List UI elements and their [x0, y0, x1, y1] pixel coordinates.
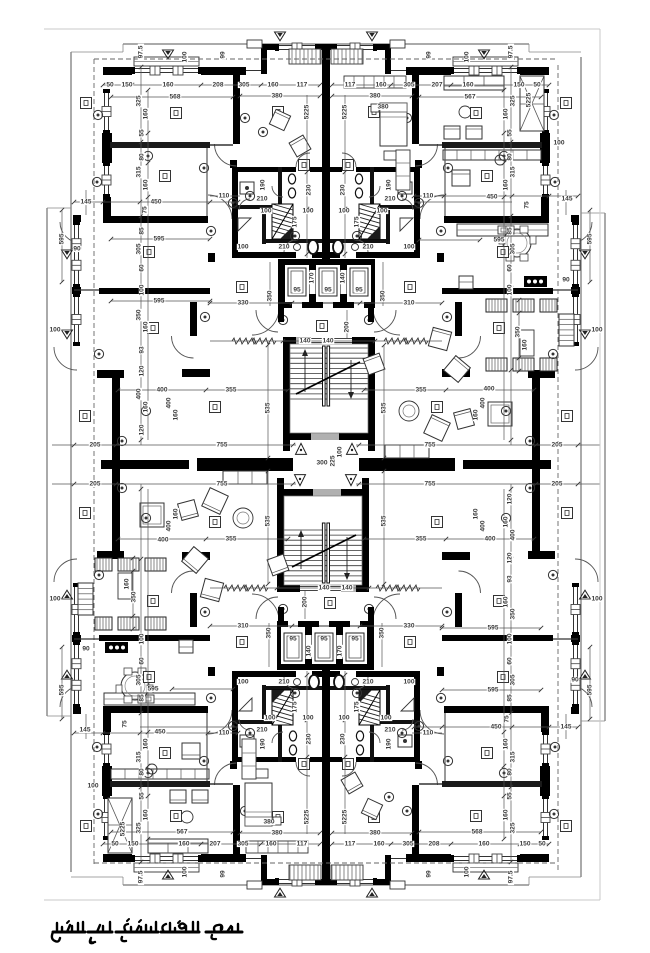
- svg-text:75: 75: [122, 720, 129, 728]
- svg-text:400: 400: [510, 529, 517, 540]
- svg-text:400: 400: [480, 520, 487, 531]
- svg-text:450: 450: [150, 199, 161, 206]
- svg-text:55: 55: [139, 129, 146, 137]
- svg-text:145: 145: [79, 727, 90, 734]
- svg-text:230: 230: [340, 184, 347, 195]
- svg-text:150: 150: [127, 841, 138, 848]
- svg-text:100: 100: [376, 208, 387, 215]
- svg-text:380: 380: [263, 819, 274, 826]
- svg-text:50: 50: [538, 841, 546, 848]
- svg-text:230: 230: [306, 184, 313, 195]
- svg-text:355: 355: [415, 387, 426, 394]
- svg-text:160: 160: [178, 841, 189, 848]
- svg-text:95: 95: [351, 636, 359, 643]
- svg-text:100: 100: [182, 51, 189, 62]
- svg-text:100: 100: [264, 715, 275, 722]
- svg-text:75: 75: [504, 715, 511, 723]
- svg-text:380: 380: [377, 104, 388, 111]
- svg-text:305: 305: [237, 841, 248, 848]
- svg-text:595: 595: [487, 687, 498, 694]
- svg-text:145: 145: [561, 196, 572, 203]
- svg-text:100: 100: [464, 51, 471, 62]
- svg-text:305: 305: [510, 674, 517, 685]
- svg-text:93: 93: [507, 575, 514, 583]
- svg-text:60: 60: [507, 657, 514, 665]
- svg-text:50: 50: [533, 82, 541, 89]
- svg-text:160: 160: [143, 321, 150, 332]
- svg-text:595: 595: [153, 236, 164, 243]
- svg-text:305: 305: [136, 674, 143, 685]
- svg-text:95: 95: [320, 636, 328, 643]
- svg-text:160: 160: [503, 596, 510, 607]
- svg-text:595: 595: [487, 625, 498, 632]
- svg-text:205: 205: [551, 481, 562, 488]
- svg-text:380: 380: [369, 93, 380, 100]
- svg-text:380: 380: [271, 93, 282, 100]
- svg-text:100: 100: [139, 284, 146, 295]
- svg-text:117: 117: [345, 841, 356, 848]
- svg-text:160: 160: [143, 809, 150, 820]
- svg-text:150: 150: [513, 82, 524, 89]
- svg-text:175: 175: [292, 216, 299, 227]
- svg-text:190: 190: [260, 738, 267, 749]
- svg-text:305: 305: [402, 841, 413, 848]
- svg-text:100: 100: [237, 244, 248, 251]
- svg-text:5225: 5225: [304, 809, 311, 824]
- svg-text:80: 80: [507, 153, 514, 161]
- svg-text:568: 568: [169, 94, 180, 101]
- svg-text:755: 755: [424, 442, 435, 449]
- svg-text:100: 100: [182, 866, 189, 877]
- svg-text:325: 325: [136, 822, 143, 833]
- svg-text:60: 60: [139, 657, 146, 665]
- svg-text:60: 60: [139, 264, 146, 272]
- svg-text:5225: 5225: [342, 104, 349, 119]
- svg-text:355: 355: [225, 536, 236, 543]
- svg-text:595: 595: [153, 298, 164, 305]
- svg-text:100: 100: [49, 596, 60, 603]
- svg-text:100: 100: [591, 596, 602, 603]
- svg-text:100: 100: [591, 327, 602, 334]
- svg-text:85: 85: [139, 694, 146, 702]
- svg-text:110: 110: [423, 730, 434, 737]
- svg-text:315: 315: [136, 166, 143, 177]
- svg-text:160: 160: [267, 82, 278, 89]
- svg-text:140: 140: [299, 338, 310, 345]
- svg-text:535: 535: [265, 402, 272, 413]
- svg-text:380: 380: [271, 830, 282, 837]
- svg-text:95: 95: [293, 287, 301, 294]
- svg-text:170: 170: [337, 645, 344, 656]
- svg-text:160: 160: [522, 339, 529, 350]
- svg-text:140: 140: [340, 272, 347, 283]
- svg-text:350: 350: [380, 290, 387, 301]
- svg-text:75: 75: [142, 206, 149, 214]
- svg-text:97.5: 97.5: [138, 45, 145, 58]
- svg-text:595: 595: [493, 237, 504, 244]
- svg-text:100: 100: [139, 633, 146, 644]
- svg-text:205: 205: [89, 442, 100, 449]
- svg-text:207: 207: [431, 82, 442, 89]
- svg-text:90: 90: [73, 246, 81, 253]
- svg-text:310: 310: [237, 623, 248, 630]
- svg-text:315: 315: [510, 751, 517, 762]
- svg-text:100: 100: [403, 679, 414, 686]
- svg-text:310: 310: [403, 300, 414, 307]
- svg-text:50: 50: [106, 82, 114, 89]
- svg-text:160: 160: [462, 82, 473, 89]
- svg-text:160: 160: [503, 108, 510, 119]
- svg-text:210: 210: [278, 679, 289, 686]
- svg-text:350: 350: [131, 591, 138, 602]
- svg-text:208: 208: [212, 82, 223, 89]
- svg-text:305: 305: [510, 243, 517, 254]
- svg-text:595: 595: [587, 684, 594, 695]
- svg-text:207: 207: [209, 841, 220, 848]
- svg-text:190: 190: [386, 179, 393, 190]
- svg-text:175: 175: [354, 701, 361, 712]
- svg-text:99: 99: [426, 870, 433, 878]
- svg-text:150: 150: [121, 82, 132, 89]
- svg-text:60: 60: [507, 264, 514, 272]
- svg-text:200: 200: [302, 596, 309, 607]
- svg-text:100: 100: [553, 140, 564, 147]
- svg-text:400: 400: [156, 387, 167, 394]
- svg-text:160: 160: [373, 841, 384, 848]
- svg-text:208: 208: [428, 841, 439, 848]
- svg-text:150: 150: [519, 841, 530, 848]
- svg-text:190: 190: [386, 738, 393, 749]
- svg-text:305: 305: [403, 82, 414, 89]
- svg-text:145: 145: [80, 199, 91, 206]
- svg-text:93: 93: [139, 346, 146, 354]
- svg-text:100: 100: [464, 866, 471, 877]
- svg-text:97.5: 97.5: [508, 45, 515, 58]
- svg-text:355: 355: [225, 387, 236, 394]
- svg-text:97.5: 97.5: [138, 870, 145, 883]
- svg-text:140: 140: [322, 338, 333, 345]
- svg-text:160: 160: [503, 809, 510, 820]
- svg-text:160: 160: [503, 516, 510, 527]
- svg-text:225: 225: [330, 455, 337, 466]
- svg-text:400: 400: [166, 397, 173, 408]
- svg-text:100: 100: [338, 208, 349, 215]
- svg-text:160: 160: [503, 738, 510, 749]
- svg-text:205: 205: [551, 442, 562, 449]
- svg-text:170: 170: [309, 272, 316, 283]
- svg-text:400: 400: [136, 388, 143, 399]
- svg-text:100: 100: [302, 208, 313, 215]
- svg-text:210: 210: [278, 244, 289, 251]
- svg-text:5225: 5225: [304, 104, 311, 119]
- svg-text:160: 160: [143, 179, 150, 190]
- svg-text:450: 450: [154, 729, 165, 736]
- svg-text:230: 230: [340, 733, 347, 744]
- svg-text:350: 350: [136, 309, 143, 320]
- svg-text:160: 160: [265, 841, 276, 848]
- svg-text:160: 160: [473, 409, 480, 420]
- svg-text:300: 300: [316, 460, 327, 467]
- svg-text:160: 160: [173, 508, 180, 519]
- svg-text:140: 140: [318, 585, 329, 592]
- svg-text:90: 90: [82, 646, 90, 653]
- svg-text:85: 85: [139, 227, 146, 235]
- svg-text:97.5: 97.5: [508, 870, 515, 883]
- svg-text:567: 567: [464, 94, 475, 101]
- svg-text:175: 175: [354, 216, 361, 227]
- svg-text:5225: 5225: [120, 821, 127, 836]
- svg-text:210: 210: [384, 196, 395, 203]
- svg-text:110: 110: [219, 730, 230, 737]
- svg-text:315: 315: [510, 166, 517, 177]
- svg-text:55: 55: [507, 129, 514, 137]
- svg-text:160: 160: [478, 841, 489, 848]
- svg-text:350: 350: [379, 627, 386, 638]
- svg-text:595: 595: [147, 686, 158, 693]
- svg-text:5225: 5225: [526, 92, 533, 107]
- svg-text:100: 100: [260, 208, 271, 215]
- svg-text:90: 90: [562, 277, 570, 284]
- svg-text:99: 99: [426, 51, 433, 59]
- svg-text:190: 190: [260, 179, 267, 190]
- svg-text:755: 755: [424, 481, 435, 488]
- svg-text:95: 95: [289, 636, 297, 643]
- svg-text:160: 160: [503, 179, 510, 190]
- svg-text:160: 160: [124, 578, 131, 589]
- svg-text:160: 160: [173, 409, 180, 420]
- svg-text:535: 535: [381, 515, 388, 526]
- svg-text:117: 117: [297, 841, 308, 848]
- svg-text:120: 120: [139, 424, 146, 435]
- svg-text:100: 100: [87, 783, 98, 790]
- svg-text:110: 110: [219, 193, 230, 200]
- svg-text:80: 80: [139, 153, 146, 161]
- svg-text:380: 380: [369, 830, 380, 837]
- svg-text:175: 175: [292, 701, 299, 712]
- svg-text:100: 100: [302, 715, 313, 722]
- svg-text:145: 145: [560, 724, 571, 731]
- svg-text:755: 755: [216, 442, 227, 449]
- svg-text:210: 210: [362, 244, 373, 251]
- svg-text:117: 117: [345, 82, 356, 89]
- svg-text:325: 325: [136, 95, 143, 106]
- svg-text:450: 450: [486, 194, 497, 201]
- svg-text:400: 400: [483, 386, 494, 393]
- svg-text:160: 160: [473, 508, 480, 519]
- svg-text:100: 100: [337, 446, 344, 457]
- svg-text:100: 100: [338, 715, 349, 722]
- svg-text:330: 330: [403, 623, 414, 630]
- svg-text:100: 100: [507, 633, 514, 644]
- svg-text:325: 325: [510, 95, 517, 106]
- svg-text:110: 110: [423, 193, 434, 200]
- svg-text:90: 90: [571, 677, 579, 684]
- svg-text:160: 160: [143, 401, 150, 412]
- svg-text:595: 595: [59, 233, 66, 244]
- svg-text:210: 210: [362, 679, 373, 686]
- svg-text:205: 205: [89, 481, 100, 488]
- svg-text:210: 210: [256, 196, 267, 203]
- svg-text:120: 120: [507, 493, 514, 504]
- svg-text:355: 355: [415, 536, 426, 543]
- svg-text:567: 567: [176, 829, 187, 836]
- svg-text:160: 160: [375, 82, 386, 89]
- svg-text:100: 100: [403, 244, 414, 251]
- svg-text:100: 100: [237, 679, 248, 686]
- svg-text:140: 140: [341, 585, 352, 592]
- svg-text:450: 450: [490, 724, 501, 731]
- svg-text:595: 595: [587, 233, 594, 244]
- svg-text:160: 160: [143, 108, 150, 119]
- svg-text:95: 95: [355, 287, 363, 294]
- svg-text:350: 350: [510, 608, 517, 619]
- svg-text:350: 350: [266, 627, 273, 638]
- svg-text:315: 315: [136, 751, 143, 762]
- svg-text:99: 99: [220, 51, 227, 59]
- svg-text:535: 535: [265, 515, 272, 526]
- svg-text:330: 330: [237, 300, 248, 307]
- svg-text:325: 325: [510, 822, 517, 833]
- svg-text:200: 200: [344, 321, 351, 332]
- svg-text:50: 50: [111, 841, 119, 848]
- svg-text:210: 210: [384, 727, 395, 734]
- svg-text:160: 160: [162, 82, 173, 89]
- svg-text:80: 80: [507, 768, 514, 776]
- svg-text:595: 595: [59, 684, 66, 695]
- svg-text:350: 350: [515, 326, 522, 337]
- svg-text:120: 120: [139, 365, 146, 376]
- svg-text:55: 55: [507, 792, 514, 800]
- svg-text:95: 95: [324, 287, 332, 294]
- svg-text:350: 350: [267, 290, 274, 301]
- svg-text:80: 80: [139, 768, 146, 776]
- svg-text:305: 305: [238, 82, 249, 89]
- svg-text:117: 117: [297, 82, 308, 89]
- svg-text:568: 568: [471, 829, 482, 836]
- svg-text:400: 400: [166, 520, 173, 531]
- svg-text:85: 85: [507, 227, 514, 235]
- svg-text:400: 400: [484, 536, 495, 543]
- svg-text:305: 305: [136, 243, 143, 254]
- svg-text:140: 140: [306, 645, 313, 656]
- svg-text:100: 100: [380, 715, 391, 722]
- svg-text:5225: 5225: [342, 809, 349, 824]
- svg-text:100: 100: [507, 284, 514, 295]
- svg-text:85: 85: [507, 694, 514, 702]
- svg-text:55: 55: [139, 792, 146, 800]
- svg-text:75: 75: [524, 201, 531, 209]
- svg-text:230: 230: [306, 733, 313, 744]
- svg-text:160: 160: [143, 738, 150, 749]
- svg-text:535: 535: [381, 402, 388, 413]
- svg-text:755: 755: [216, 481, 227, 488]
- svg-text:120: 120: [507, 552, 514, 563]
- svg-text:400: 400: [157, 537, 168, 544]
- svg-text:100: 100: [49, 327, 60, 334]
- svg-text:400: 400: [480, 397, 487, 408]
- svg-text:99: 99: [220, 870, 227, 878]
- svg-text:210: 210: [256, 727, 267, 734]
